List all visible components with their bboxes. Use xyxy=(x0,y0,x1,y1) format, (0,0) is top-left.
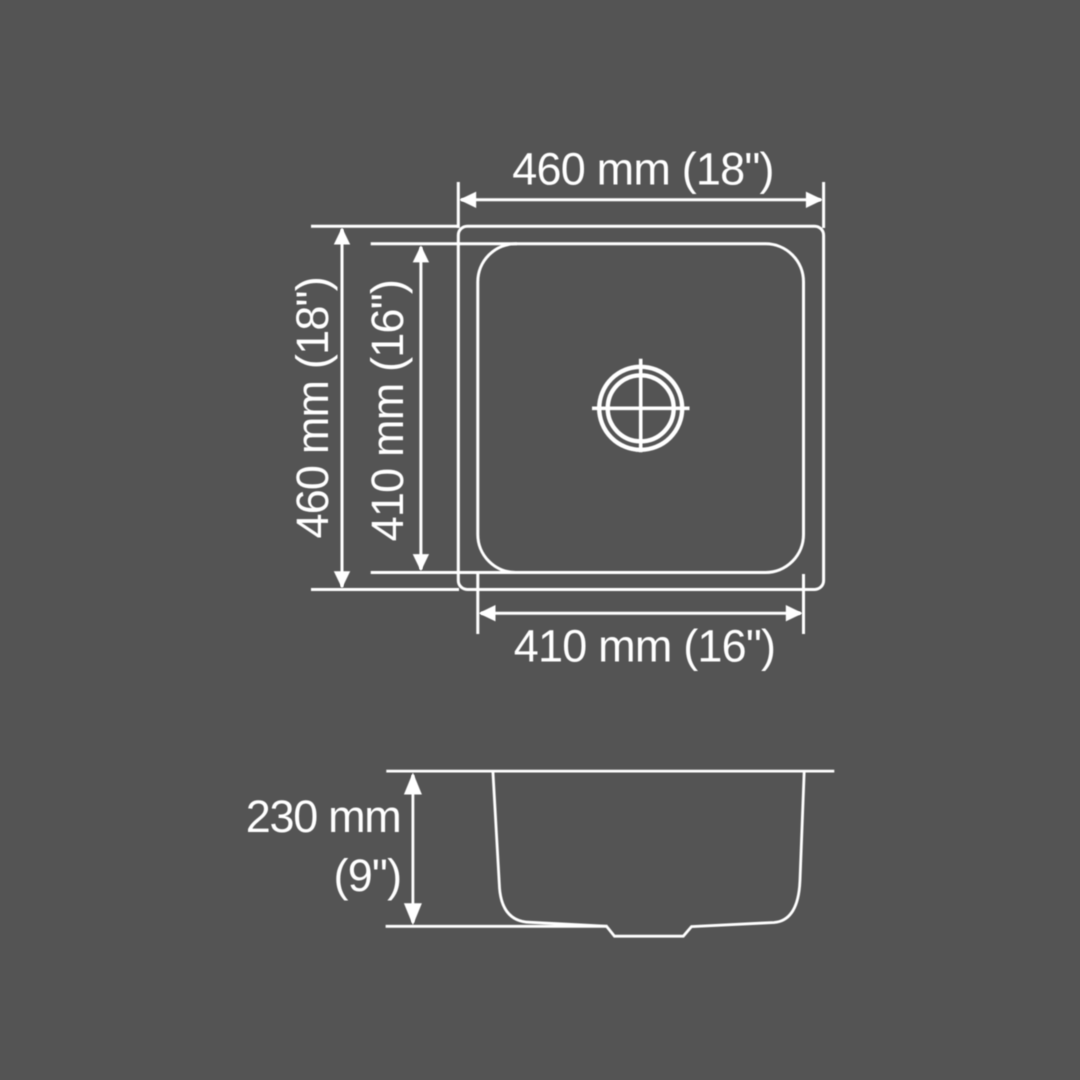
svg-text:460 mm (18"): 460 mm (18") xyxy=(287,277,338,538)
svg-text:410 mm (16"): 410 mm (16") xyxy=(514,621,775,672)
svg-text:460 mm (18"): 460 mm (18") xyxy=(512,144,773,195)
svg-text:(9"): (9") xyxy=(334,850,402,901)
svg-text:410 mm (16"): 410 mm (16") xyxy=(362,280,413,541)
svg-text:230 mm: 230 mm xyxy=(246,791,401,842)
